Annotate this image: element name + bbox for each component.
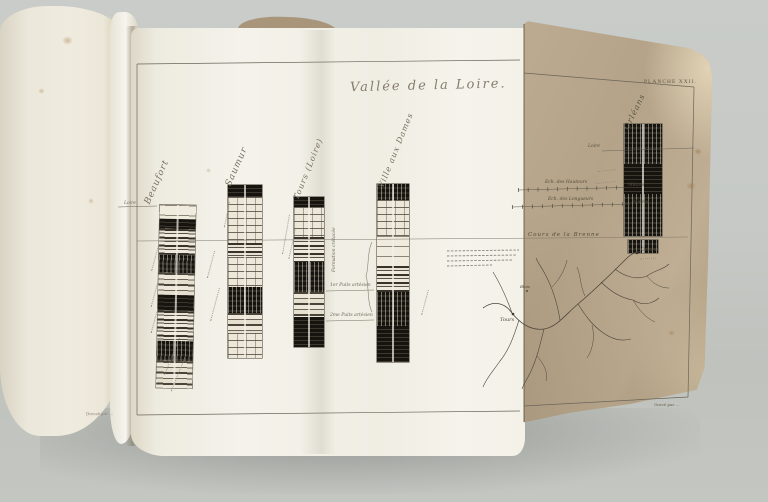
waterline-label-beaufort: Loire <box>124 201 136 206</box>
map-place-orleans: Orléans <box>641 248 659 253</box>
well-annotation-2: 2me Puits artésien <box>330 313 373 318</box>
map-town-dots <box>512 252 639 316</box>
datum-line <box>137 237 688 241</box>
scale-label-1: Ech. des Hauteurs <box>545 180 587 185</box>
waterline-label-orleans: Loire <box>588 144 600 149</box>
scale-label-2: Ech. des Longueurs <box>548 197 593 202</box>
map-place-tours: Tours <box>500 317 514 323</box>
orleans-level-line <box>602 148 694 151</box>
photo-of-open-book: Vallée de la Loire. PLANCHE XXII. Beaufo… <box>0 0 768 502</box>
scale-unit-1: Mètres <box>628 183 644 188</box>
formation-label: Formation crétacée <box>332 227 337 272</box>
formation-brace <box>366 242 372 312</box>
note-text-lines <box>447 250 519 266</box>
credit-right: Gravé par … <box>654 402 680 407</box>
map-title: Cours de la Brenne <box>528 232 600 238</box>
credit-left: Dressé par … <box>86 411 113 416</box>
scale-unit-2: Mètres <box>633 200 649 205</box>
beaufort-level-line <box>118 206 157 207</box>
plate-number: PLANCHE XXII. <box>644 79 697 85</box>
well-annotation-1: 1er Puits artésien <box>330 283 371 288</box>
map-place-blois: Blois <box>520 284 530 289</box>
